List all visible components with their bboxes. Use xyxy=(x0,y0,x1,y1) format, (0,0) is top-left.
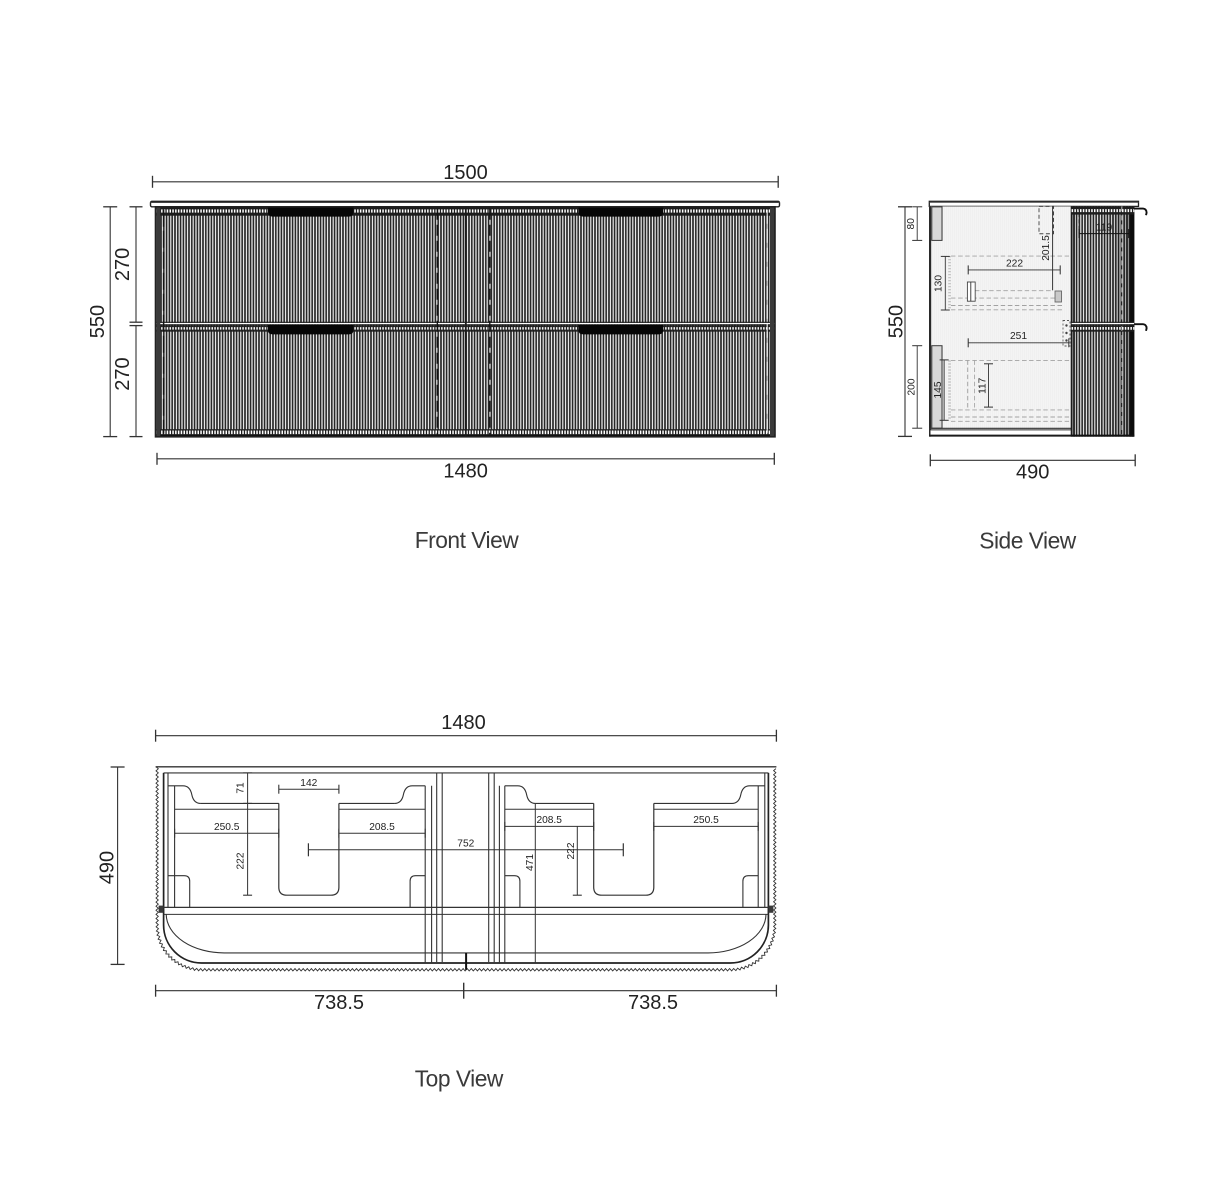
svg-text:1480: 1480 xyxy=(441,712,486,734)
svg-text:80: 80 xyxy=(906,218,917,230)
svg-text:490: 490 xyxy=(96,851,118,884)
svg-text:222: 222 xyxy=(1006,258,1023,269)
svg-text:130: 130 xyxy=(934,275,945,292)
svg-text:208.5: 208.5 xyxy=(536,815,562,826)
svg-text:270: 270 xyxy=(112,357,134,390)
svg-text:738.5: 738.5 xyxy=(628,992,678,1014)
svg-text:222: 222 xyxy=(236,852,247,869)
svg-text:250.5: 250.5 xyxy=(693,815,719,826)
svg-text:145: 145 xyxy=(933,381,944,398)
svg-text:490: 490 xyxy=(1016,462,1049,484)
svg-text:200: 200 xyxy=(906,378,917,395)
svg-text:550: 550 xyxy=(87,305,109,338)
svg-text:270: 270 xyxy=(112,248,134,281)
svg-text:119: 119 xyxy=(1096,223,1113,234)
svg-text:738.5: 738.5 xyxy=(314,992,364,1014)
svg-text:142: 142 xyxy=(300,778,317,789)
svg-text:208.5: 208.5 xyxy=(369,822,395,833)
svg-text:Front View: Front View xyxy=(415,527,520,553)
svg-text:1480: 1480 xyxy=(443,460,488,482)
svg-text:Top View: Top View xyxy=(415,1065,504,1091)
svg-text:251: 251 xyxy=(1010,331,1027,342)
svg-text:1500: 1500 xyxy=(443,162,488,184)
svg-text:117: 117 xyxy=(978,377,989,394)
svg-text:250.5: 250.5 xyxy=(214,822,240,833)
svg-text:201.5: 201.5 xyxy=(1041,235,1052,261)
svg-text:550: 550 xyxy=(885,305,907,338)
svg-text:Side View: Side View xyxy=(979,528,1076,554)
svg-text:752: 752 xyxy=(457,838,474,849)
svg-text:71: 71 xyxy=(236,782,247,794)
svg-text:471: 471 xyxy=(525,854,536,871)
svg-text:222: 222 xyxy=(566,842,577,859)
